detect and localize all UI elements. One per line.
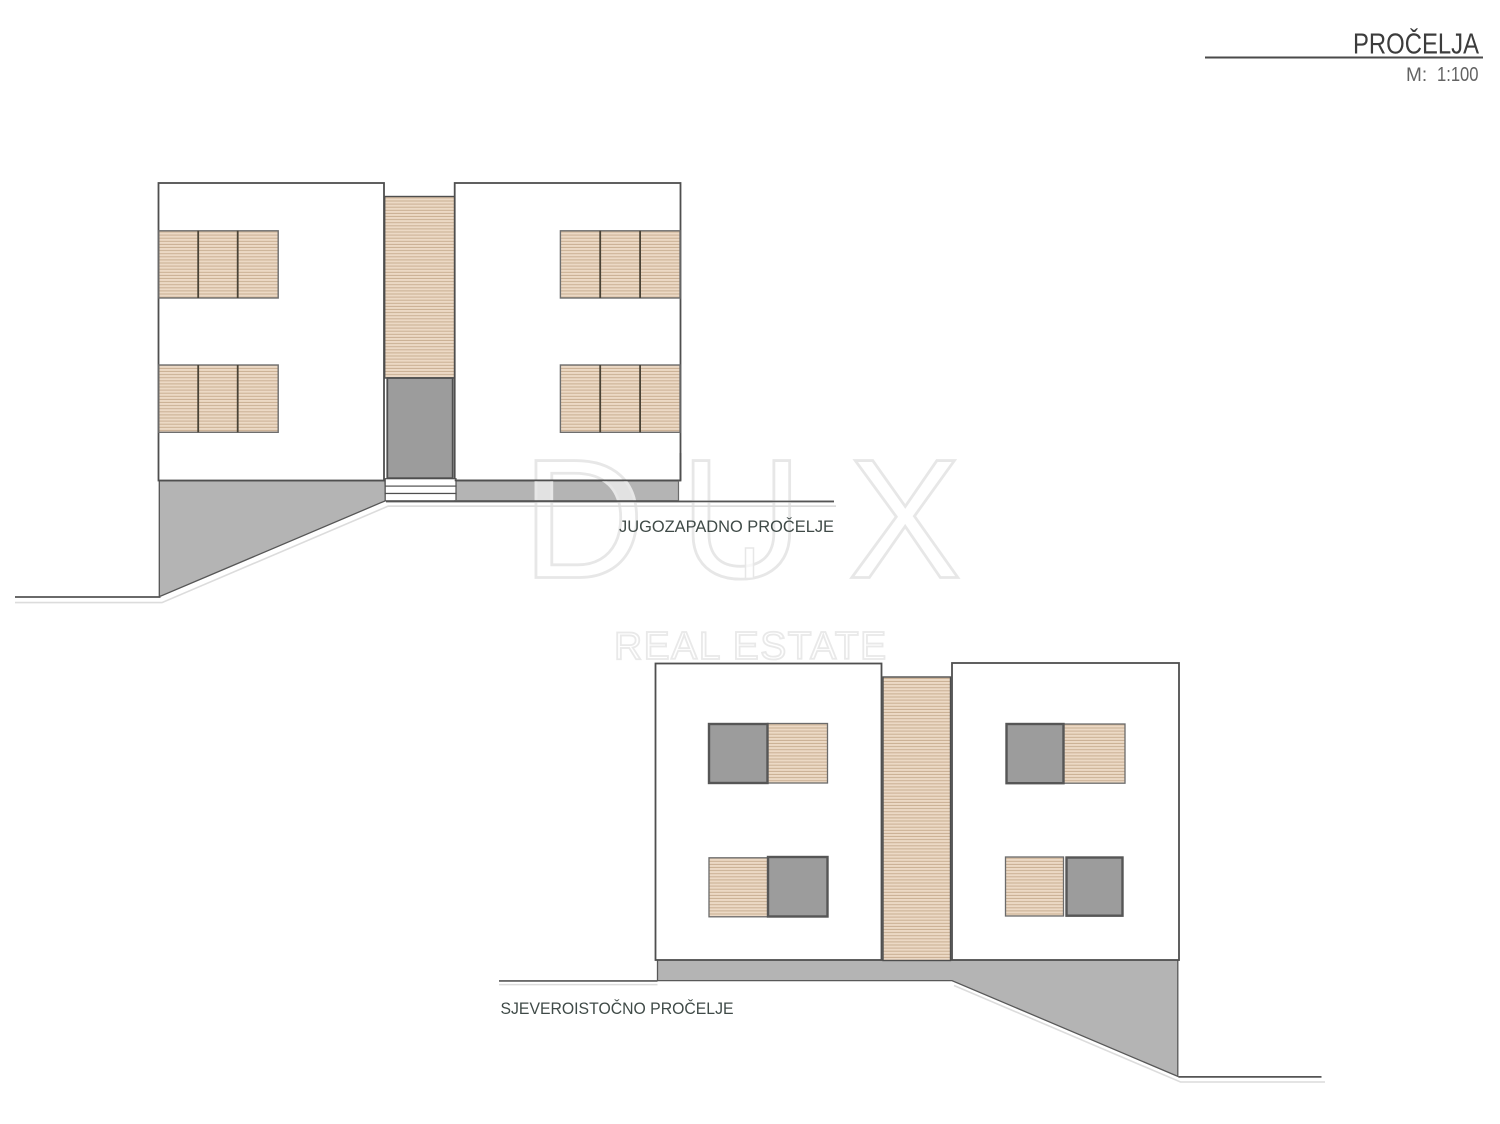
svg-text:SJEVEROISTOČNO PROČELJE: SJEVEROISTOČNO PROČELJE <box>501 999 734 1018</box>
svg-text:JUGOZAPADNO PROČELJE: JUGOZAPADNO PROČELJE <box>619 517 834 536</box>
svg-text:M:: M: <box>1406 65 1427 86</box>
svg-text:PROČELJA: PROČELJA <box>1353 27 1480 61</box>
svg-text:X: X <box>848 425 961 615</box>
svg-text:1:100: 1:100 <box>1437 64 1479 86</box>
svg-text:REAL ESTATE: REAL ESTATE <box>614 625 888 668</box>
